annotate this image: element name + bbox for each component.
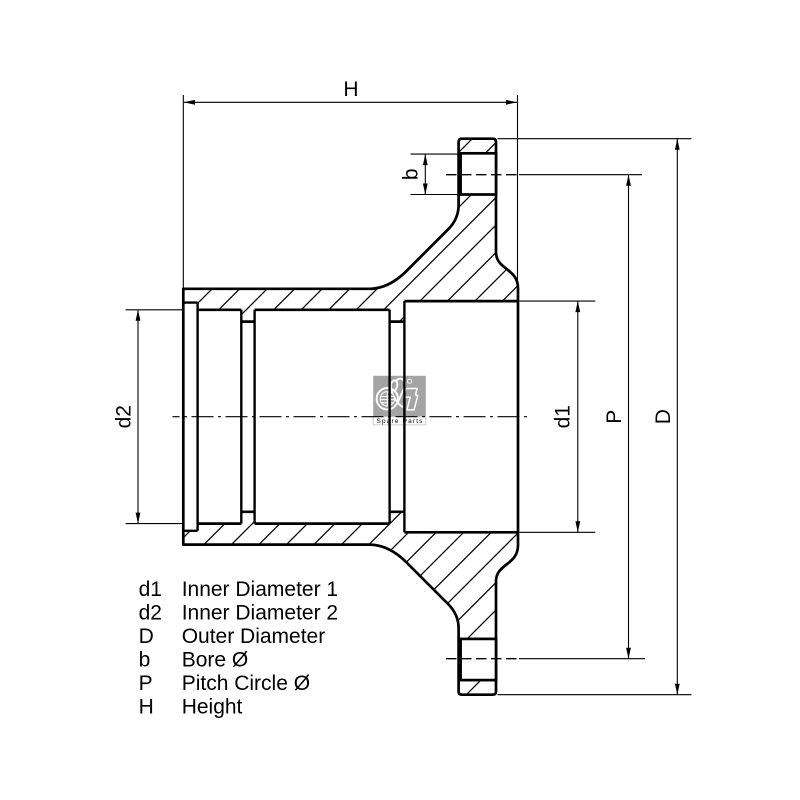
svg-text:H: H	[343, 78, 358, 101]
svg-text:Inner Diameter 1: Inner Diameter 1	[182, 578, 338, 601]
svg-text:P: P	[139, 672, 153, 695]
svg-text:Pitch Circle Ø: Pitch Circle Ø	[182, 672, 310, 695]
svg-text:b: b	[139, 648, 151, 671]
svg-text:d2: d2	[139, 601, 162, 624]
svg-text:Inner Diameter 2: Inner Diameter 2	[182, 601, 338, 624]
svg-text:D: D	[652, 409, 675, 424]
svg-text:Outer Diameter: Outer Diameter	[182, 625, 326, 648]
svg-text:Spare Parts: Spare Parts	[377, 418, 423, 425]
svg-text:P: P	[603, 410, 626, 424]
svg-text:Height: Height	[182, 695, 243, 718]
svg-text:D: D	[139, 625, 154, 648]
svg-text:d1: d1	[552, 405, 575, 428]
svg-text:b: b	[400, 168, 423, 180]
svg-text:H: H	[139, 695, 154, 718]
svg-text:d2: d2	[113, 405, 136, 428]
svg-text:d1: d1	[139, 578, 162, 601]
svg-text:Bore Ø: Bore Ø	[182, 648, 249, 671]
